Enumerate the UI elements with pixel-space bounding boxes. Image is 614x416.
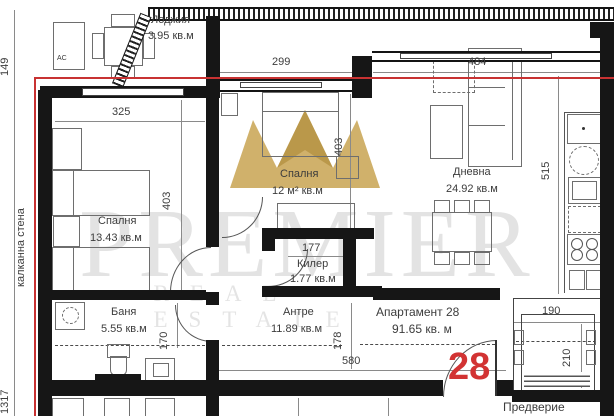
fixture-symbol: [104, 398, 130, 416]
fixture-symbol: [52, 398, 84, 416]
chair-symbol: [474, 252, 490, 265]
dim-210: 210: [562, 335, 573, 367]
dim-149: 149: [0, 26, 11, 76]
dim-325: 325: [112, 106, 130, 119]
room-area-hall: 11.89 кв.м: [271, 323, 322, 336]
wall: [262, 228, 374, 239]
room-label-loggia: Лоджия: [151, 14, 190, 27]
chair-symbol: [454, 252, 470, 265]
fixture-symbol: [145, 398, 175, 416]
dim-line: [219, 72, 358, 73]
room-area-bath: 5.55 кв.м: [101, 323, 147, 336]
coffee-table-symbol: [430, 105, 463, 159]
wall: [262, 239, 275, 251]
wall: [206, 97, 219, 247]
wall: [206, 292, 219, 305]
washbasin-symbol: [145, 358, 175, 382]
room-area-bedroom1: 13.43 кв.м: [90, 232, 142, 245]
boundary-line-horizontal: [36, 77, 614, 79]
wall: [206, 398, 219, 416]
double-sink-symbol: [569, 270, 585, 290]
apartment-number: 28: [448, 346, 490, 389]
chair-symbol: [434, 200, 450, 213]
window-pane: [240, 82, 322, 88]
wall: [95, 374, 141, 382]
room-area-bedroom2: 12 м² кв.м: [272, 185, 323, 198]
elevator-rail-symbol: [586, 350, 596, 365]
chair-symbol: [474, 200, 490, 213]
stove-symbol: [567, 234, 602, 265]
corridor-line: [298, 398, 299, 416]
wall: [373, 288, 500, 300]
bed-symbol: [52, 247, 150, 294]
nightstand-symbol: [221, 93, 238, 116]
room-label-hall: Антре: [283, 306, 314, 319]
apartment-area: 91.65 кв. м: [392, 323, 452, 337]
dim-403a: 403: [162, 176, 173, 210]
dim-1317: 1317: [0, 372, 11, 414]
room-label-living: Дневна: [453, 166, 491, 179]
dim-170: 170: [159, 322, 170, 350]
elevator-rail-symbol: [514, 330, 524, 345]
room-label-storage: Килер: [297, 258, 328, 271]
dim-484: 484: [468, 56, 486, 69]
elevator-door-hatch: [524, 372, 590, 387]
dim-line: [55, 121, 205, 122]
wardrobe-symbol: [277, 203, 355, 229]
vestibule-label: Предверие: [503, 401, 565, 415]
room-area-storage: 1.77 кв.м: [290, 273, 336, 286]
wall: [206, 16, 220, 98]
wardrobe-symbol: [52, 128, 82, 170]
chair-symbol: [434, 252, 450, 265]
dim-580: 580: [342, 355, 360, 368]
chair-symbol: [454, 200, 470, 213]
appliance-symbol: [568, 206, 601, 233]
chair-symbol: [92, 33, 104, 59]
dim-299: 299: [272, 56, 290, 69]
dim-515: 515: [541, 146, 552, 180]
wall: [600, 22, 614, 416]
toilet-symbol: [110, 356, 127, 376]
room-label-bedroom1: Спалня: [98, 215, 136, 228]
floor-plan: PREMIER REAL ESTATE 28: [0, 0, 614, 416]
ac-label: AC: [57, 55, 67, 63]
wall: [262, 286, 382, 297]
washing-machine-symbol: [55, 302, 85, 330]
apartment-title: Апартамент 28: [376, 306, 459, 320]
elevator-rail-symbol: [586, 330, 596, 345]
dashed-line: [55, 345, 205, 346]
room-label-bedroom2: Спалня: [280, 168, 318, 181]
dashed-line: [222, 345, 342, 346]
door-leaf-entrance: [495, 340, 497, 396]
door-arc-bath: [175, 305, 212, 342]
nightstand-symbol: [53, 216, 80, 247]
kitchen-cabinet-symbol: [567, 114, 601, 144]
nightstand-symbol: [336, 156, 359, 179]
chair-symbol: [111, 14, 135, 27]
wall: [497, 380, 513, 396]
room-area-loggia: 3.95 кв.м: [148, 30, 194, 43]
bed-symbol: [52, 170, 150, 216]
wall: [38, 90, 52, 416]
dim-403b: 403: [334, 122, 345, 156]
dim-177: 177: [302, 242, 320, 255]
elevator-rail-symbol: [514, 350, 524, 365]
window: [82, 88, 184, 96]
corridor-line: [388, 398, 389, 416]
oven-symbol: [568, 177, 601, 204]
sink-symbol: [569, 146, 599, 175]
bed-symbol: [262, 92, 339, 157]
dim-178: 178: [333, 320, 344, 350]
boundary-line-vertical: [34, 77, 36, 416]
dim-line: [558, 76, 559, 294]
dining-table-symbol: [432, 212, 492, 252]
wall: [38, 380, 443, 396]
wall: [48, 290, 206, 300]
room-label-bath: Баня: [111, 306, 136, 319]
room-area-living: 24.92 кв.м: [446, 183, 498, 196]
dim-190: 190: [542, 305, 560, 318]
party-wall-label: калканна стена: [16, 112, 27, 287]
